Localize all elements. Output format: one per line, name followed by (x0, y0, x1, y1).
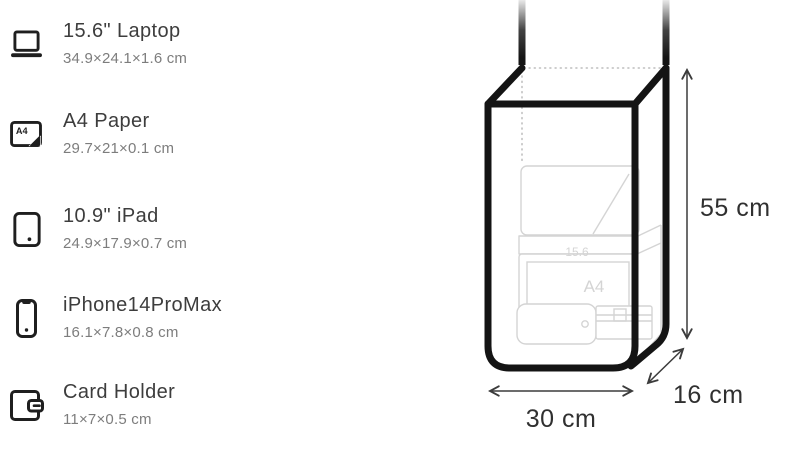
ghost-items-group: 15.6 A4 (517, 166, 661, 356)
depth-arrow (648, 349, 683, 383)
size-comparison-infographic: 15.6" Laptop 34.9×24.1×1.6 cm A4 A4 Pape… (0, 0, 800, 455)
bag-top-left-edge (488, 68, 522, 104)
ghost-depth-line (638, 225, 661, 236)
depth-label: 16 cm (673, 381, 744, 409)
bag-dimension-diagram: 15.6 A4 55 cm 30 cm 16 cm (0, 0, 800, 455)
bag-top-right-edge (635, 68, 666, 104)
height-label: 55 cm (700, 194, 771, 222)
ghost-tablet (521, 166, 639, 235)
ghost-depth-line (637, 243, 661, 254)
ghost-laptop-label: 15.6 (565, 245, 589, 259)
ghost-card-holder (596, 306, 652, 339)
width-label: 30 cm (526, 405, 597, 433)
ghost-phone (517, 304, 596, 344)
ghost-a4-label: A4 (584, 277, 605, 296)
